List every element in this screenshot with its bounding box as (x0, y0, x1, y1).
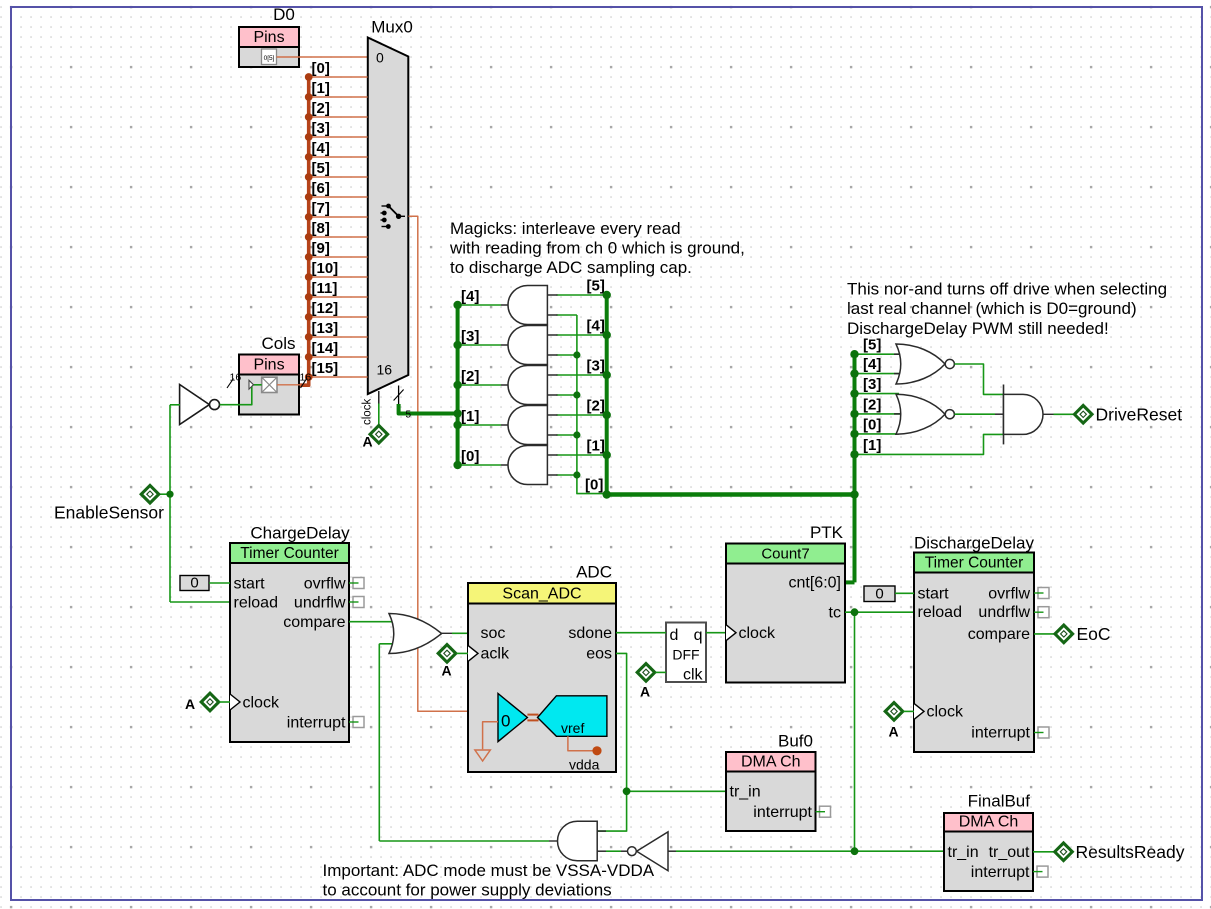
svg-text:[11]: [11] (312, 280, 338, 297)
svg-text:EnableSensor: EnableSensor (54, 503, 164, 523)
svg-text:Scan_ADC: Scan_ADC (502, 586, 581, 603)
svg-text:[4]: [4] (461, 288, 479, 305)
svg-text:DMA Ch: DMA Ch (959, 814, 1019, 831)
svg-text:ovrflw: ovrflw (988, 585, 1030, 602)
svg-text:clock: clock (927, 704, 964, 721)
svg-text:A: A (442, 663, 452, 679)
svg-text:DMA Ch: DMA Ch (741, 754, 801, 771)
svg-text:16: 16 (300, 372, 312, 384)
svg-text:[3]: [3] (461, 328, 479, 345)
svg-text:interrupt: interrupt (753, 804, 812, 821)
svg-text:[12]: [12] (312, 300, 339, 317)
svg-text:DischargeDelay PWM still neede: DischargeDelay PWM still needed! (847, 319, 1109, 338)
svg-text:Magicks: interleave every read: Magicks: interleave every read (450, 219, 681, 238)
svg-text:[2]: [2] (461, 368, 479, 385)
svg-text:0: 0 (501, 712, 510, 731)
svg-text:[5]: [5] (863, 337, 881, 354)
svg-text:cnt[6:0]: cnt[6:0] (789, 575, 841, 592)
svg-text:FinalBuf: FinalBuf (968, 792, 1031, 811)
svg-text:undrflw: undrflw (294, 594, 346, 611)
svg-text:5: 5 (406, 410, 412, 421)
svg-text:Buf0: Buf0 (778, 732, 813, 751)
svg-text:0[5]: 0[5] (264, 55, 275, 62)
svg-text:tr_in: tr_in (730, 784, 761, 801)
svg-text:clock: clock (362, 399, 374, 425)
svg-text:d: d (670, 627, 679, 644)
svg-text:last real channel (which is D0: last real channel (which is D0=ground) (847, 299, 1137, 318)
svg-text:[1]: [1] (587, 437, 605, 454)
svg-text:[15]: [15] (312, 360, 339, 377)
svg-text:[2]: [2] (587, 397, 605, 414)
svg-text:reload: reload (234, 594, 278, 611)
svg-text:[0]: [0] (585, 477, 603, 494)
svg-text:[4]: [4] (312, 140, 330, 157)
svg-text:Pins: Pins (253, 357, 284, 374)
svg-text:[1]: [1] (312, 80, 330, 97)
svg-text:tc: tc (829, 604, 841, 621)
svg-text:0: 0 (190, 575, 198, 592)
svg-text:DischargeDelay: DischargeDelay (914, 533, 1034, 552)
svg-text:compare: compare (968, 626, 1030, 643)
svg-text:Mux0: Mux0 (371, 18, 413, 37)
svg-text:Cols: Cols (261, 334, 295, 353)
svg-text:A: A (185, 696, 195, 712)
svg-text:aclk: aclk (481, 646, 510, 663)
svg-text:A: A (363, 434, 373, 450)
svg-text:[0]: [0] (461, 448, 479, 465)
svg-text:Important: ADC mode must be VS: Important: ADC mode must be VSSA-VDDA (323, 861, 655, 880)
svg-text:ChargeDelay: ChargeDelay (250, 524, 350, 543)
svg-text:[2]: [2] (863, 396, 881, 413)
svg-text:DriveReset: DriveReset (1096, 405, 1183, 425)
svg-text:A: A (889, 724, 899, 740)
svg-text:EoC: EoC (1077, 624, 1111, 644)
svg-text:start: start (234, 575, 266, 592)
svg-text:ovrflw: ovrflw (304, 575, 346, 592)
svg-text:Pins: Pins (253, 29, 284, 46)
svg-text:clk: clk (683, 667, 704, 684)
svg-text:ADC: ADC (576, 563, 612, 582)
svg-text:reload: reload (918, 604, 962, 621)
svg-text:soc: soc (481, 625, 506, 642)
svg-text:[1]: [1] (863, 437, 881, 454)
svg-text:[5]: [5] (587, 277, 605, 294)
svg-text:q: q (694, 627, 703, 644)
svg-text:A: A (640, 684, 650, 700)
svg-text:[9]: [9] (312, 240, 330, 257)
svg-text:interrupt: interrupt (971, 725, 1030, 742)
svg-text:[1]: [1] (461, 408, 479, 425)
svg-text:to discharge ADC sampling cap.: to discharge ADC sampling cap. (450, 258, 692, 277)
svg-text:interrupt: interrupt (971, 864, 1030, 881)
svg-text:with reading from ch 0 which i: with reading from ch 0 which is ground, (449, 239, 745, 258)
svg-text:interrupt: interrupt (287, 714, 346, 731)
svg-text:tr_in: tr_in (948, 844, 979, 861)
svg-text:DFF: DFF (672, 647, 699, 663)
svg-text:clock: clock (243, 694, 280, 711)
svg-text:[2]: [2] (312, 100, 330, 117)
svg-text:start: start (918, 585, 950, 602)
svg-text:0: 0 (376, 50, 384, 66)
svg-text:eos: eos (586, 646, 612, 663)
svg-text:D0: D0 (273, 5, 295, 24)
svg-text:tr_out: tr_out (989, 844, 1030, 861)
svg-text:[6]: [6] (312, 180, 330, 197)
svg-text:[4]: [4] (863, 356, 881, 373)
svg-text:[10]: [10] (312, 260, 339, 277)
svg-text:[3]: [3] (587, 357, 605, 374)
svg-text:undrflw: undrflw (978, 604, 1030, 621)
svg-text:ResultsReady: ResultsReady (1076, 842, 1185, 862)
svg-text:[14]: [14] (312, 340, 339, 357)
svg-text:Timer Counter: Timer Counter (925, 555, 1023, 572)
svg-text:to account for power supply de: to account for power supply deviations (323, 881, 612, 900)
svg-text:[8]: [8] (312, 220, 330, 237)
svg-text:[0]: [0] (312, 60, 330, 77)
svg-text:16: 16 (377, 362, 393, 378)
svg-text:clock: clock (739, 625, 776, 642)
svg-text:compare: compare (283, 614, 345, 631)
svg-text:[4]: [4] (587, 317, 605, 334)
svg-text:[5]: [5] (312, 160, 330, 177)
svg-text:[3]: [3] (312, 120, 330, 137)
svg-text:[13]: [13] (312, 320, 339, 337)
svg-text:sdone: sdone (568, 625, 612, 642)
svg-text:vdda: vdda (569, 756, 600, 772)
svg-text:[3]: [3] (863, 376, 881, 393)
svg-text:Count7: Count7 (761, 546, 809, 563)
svg-text:vref: vref (561, 720, 584, 736)
svg-text:Timer Counter: Timer Counter (240, 545, 338, 562)
svg-text:[0]: [0] (863, 416, 881, 433)
svg-text:PTK: PTK (810, 523, 844, 542)
svg-text:[7]: [7] (312, 200, 330, 217)
svg-text:This nor-and turns off drive w: This nor-and turns off drive when select… (847, 280, 1167, 299)
svg-text:0: 0 (875, 586, 883, 603)
